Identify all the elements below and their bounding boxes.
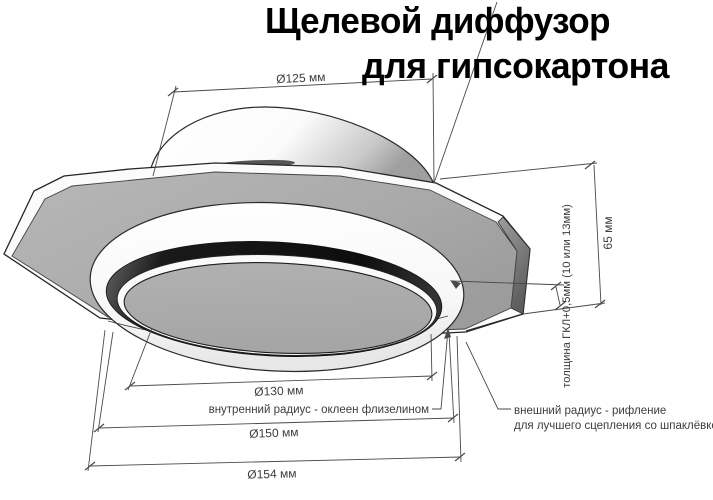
dim150-ext-right: [449, 333, 454, 423]
inner-radius-note: внутренний радиус - оклеен флизелином: [209, 404, 430, 416]
dim65-label: 65 мм: [601, 216, 615, 249]
dim154-label: Ø154 мм: [247, 466, 297, 481]
inner-radius-leader: [432, 330, 448, 409]
page-title-line1: Щелевой диффузор: [265, 0, 610, 41]
dim150-ext-left: [98, 332, 113, 432]
outer-radius-note-line1: внешний радиус - рифление: [514, 405, 666, 417]
technical-drawing-page: Щелевой диффузор для гипсокартона Ø125 м…: [0, 0, 713, 500]
dimGKL-line: [556, 287, 560, 305]
dim154-line: [90, 457, 460, 466]
dim125-label: Ø125 мм: [276, 70, 326, 86]
diffuser-drawing: Щелевой диффузор для гипсокартона Ø125 м…: [0, 0, 713, 500]
dim65-line: [594, 165, 601, 305]
dim150-label: Ø150 мм: [249, 425, 299, 441]
dim65-ext-top: [440, 163, 597, 179]
dim125-ext-right: [433, 73, 434, 182]
outer-radius-leader: [466, 342, 511, 409]
dim130-label: Ø130 мм: [254, 383, 304, 399]
outer-radius-note-line2: для лучшего сцепления со шпаклёвкой: [514, 420, 713, 432]
gkl-thickness-label: толщина ГКЛ+0,5мм (10 или 13мм): [561, 204, 573, 388]
dim154-ext-right: [457, 336, 461, 462]
page-title-line2: для гипсокартона: [362, 45, 670, 86]
